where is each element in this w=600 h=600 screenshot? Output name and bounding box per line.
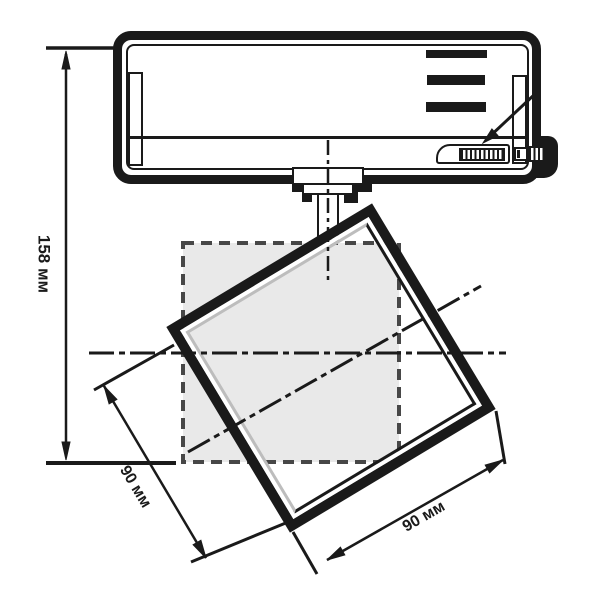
extension-line-bottom-corner-left [191,520,293,562]
extension-line-bottom-corner-right [293,532,317,574]
arrow-upleft-icon [104,386,117,404]
width-dimension-label-left: 90 мм [116,463,154,511]
height-dimension-label: 158 мм [35,235,54,293]
arrow-up-icon [62,51,70,69]
extension-line-right-corner [496,411,505,464]
arrow-downright-icon [193,540,206,558]
arrow-downleft-icon [327,547,345,560]
center-line-diagonal [188,286,481,452]
fixture-dimension-diagram: 158 мм 90 мм 90 мм [0,0,600,600]
arrow-upright-icon [485,460,503,473]
width-dimension-line-right [327,460,503,560]
arrow-down-icon [62,442,70,460]
annotation-layer: 158 мм 90 мм 90 мм [0,0,600,600]
